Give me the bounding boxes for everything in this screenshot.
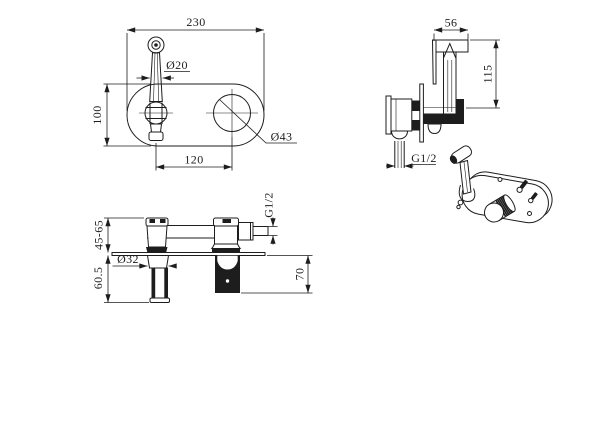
lever	[148, 37, 164, 102]
technical-drawing: 230 Ø20 100 120 Ø43	[0, 0, 600, 424]
dim-text-plate-height: 100	[90, 105, 104, 124]
handle-below-wall	[148, 256, 170, 303]
dim-text-plate-width: 230	[186, 15, 205, 29]
front-section-view: 45-65 60.5 Ø32 G1/2 70	[91, 192, 313, 302]
dim-plate-height: 100	[90, 84, 151, 146]
dim-outlet-thread: G1/2	[262, 192, 278, 244]
spout-section	[215, 256, 240, 294]
dim-text-lever-diameter: Ø20	[166, 58, 188, 72]
side-view-sprayer: 56 115 G1/2	[386, 16, 500, 169]
dim-inlet-thread: G1/2	[386, 151, 437, 166]
dim-lever-diameter: Ø20	[137, 58, 191, 78]
dim-text-sprayer-height: 115	[481, 65, 495, 84]
plate-screw-bottom	[528, 212, 532, 216]
outlet-cartridge	[212, 218, 268, 255]
drawing-sheet: 230 Ø20 100 120 Ø43	[0, 0, 600, 424]
dim-text-mounting-depth: 45-65	[92, 220, 106, 250]
dim-hole-spacing: 120	[156, 137, 232, 171]
dim-mounting-depth: 45-65	[92, 218, 145, 253]
plate-outline	[127, 84, 264, 146]
dim-plate-width: 230	[127, 15, 264, 111]
top-view-plate: 230 Ø20 100 120 Ø43	[90, 15, 297, 171]
dim-text-head-width: 56	[445, 16, 458, 30]
dim-text-hole-spacing: 120	[184, 153, 203, 167]
sprayer-head	[433, 40, 469, 84]
dim-head-width: 56	[434, 16, 468, 42]
lever-cartridge	[146, 218, 168, 253]
dim-text-outlet-thread: G1/2	[262, 192, 276, 218]
perspective-view	[448, 144, 555, 226]
plate-screw-top	[498, 178, 502, 182]
dim-text-knob-diameter: Ø43	[271, 130, 293, 144]
dim-text-spout-projection: 70	[293, 268, 307, 281]
dim-text-handle-projection: 60.5	[91, 267, 105, 290]
knob-hole	[206, 89, 258, 137]
dim-sprayer-height: 115	[466, 40, 500, 108]
lever-ball-joint	[139, 102, 173, 141]
dim-knob-diameter: Ø43	[220, 100, 298, 144]
dim-spout-projection: 70	[241, 256, 313, 294]
dim-text-handle-diameter: Ø32	[117, 252, 139, 266]
sprayer-handle	[444, 52, 457, 114]
dim-text-inlet-thread: G1/2	[411, 151, 437, 165]
